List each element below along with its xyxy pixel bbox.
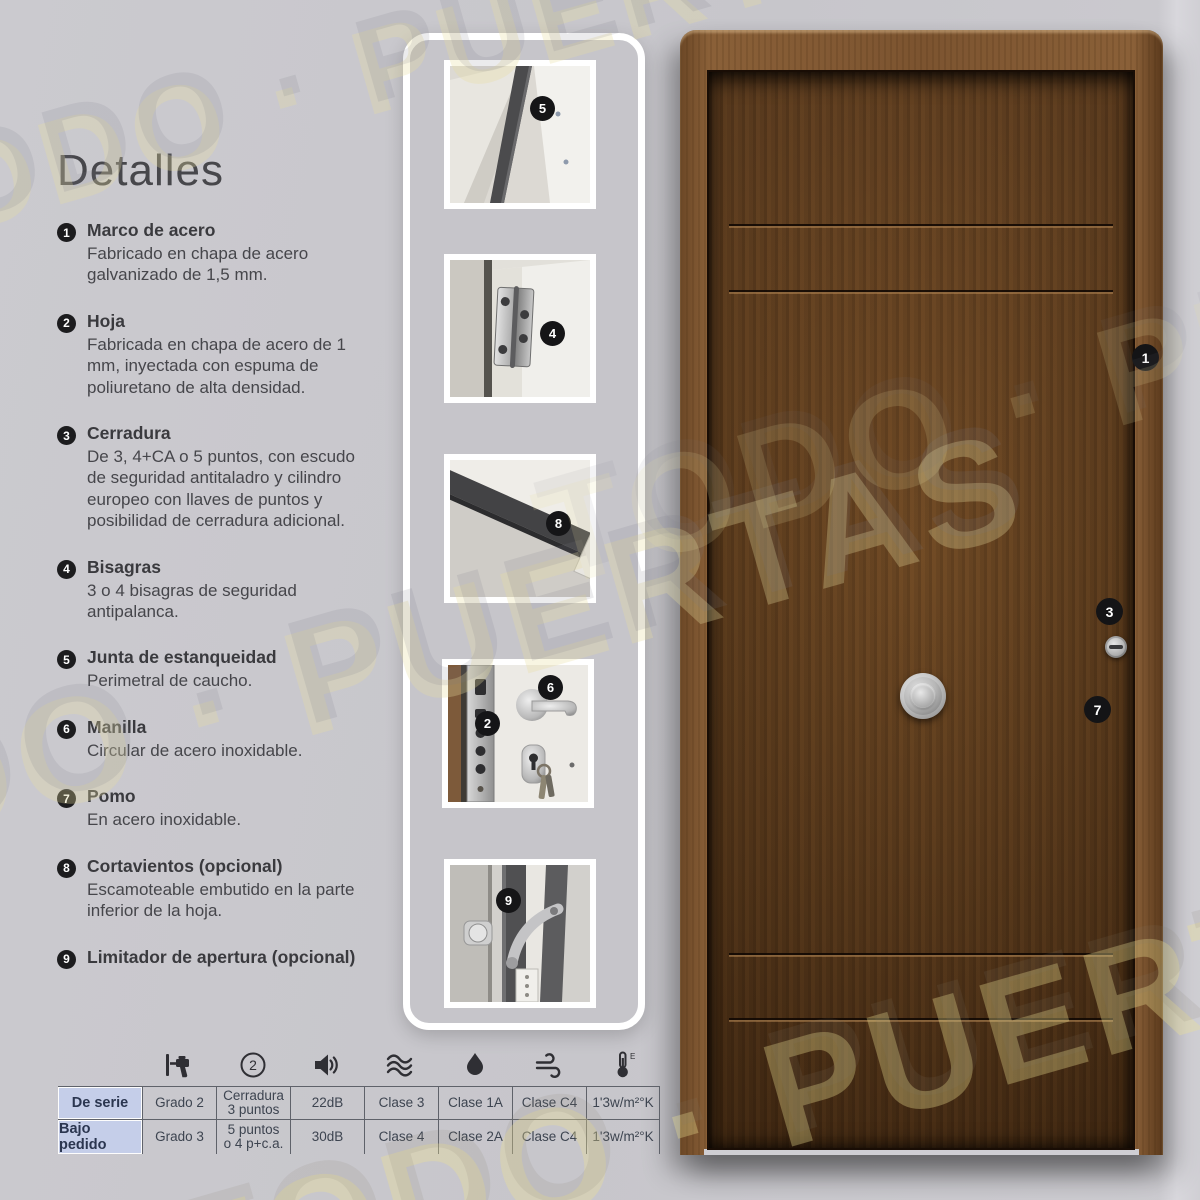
spec-table: 2 xyxy=(58,1044,660,1152)
photo-bisagra: 4 xyxy=(444,254,596,403)
item-desc: Escamoteable embutido en la parte inferi… xyxy=(87,879,372,922)
spec-row-bajo-pedido: Bajo pedido Grado 3 5 puntos o 4 p+c.a. … xyxy=(58,1119,660,1152)
photo-limitador: 9 xyxy=(444,859,596,1008)
list-item: 3 Cerradura De 3, 4+CA o 5 puntos, con e… xyxy=(57,423,372,532)
item-title: Cortavientos (opcional) xyxy=(87,856,372,877)
spec-cell: Clase 4 xyxy=(364,1120,438,1154)
number-badge: 5 xyxy=(57,650,76,669)
bisagra-photo-art xyxy=(450,260,590,397)
air-permeability-icon xyxy=(364,1044,438,1086)
svg-text:2: 2 xyxy=(249,1057,257,1073)
item-desc: Perimetral de caucho. xyxy=(87,670,372,691)
list-item: 2 Hoja Fabricada en chapa de acero de 1 … xyxy=(57,311,372,398)
limitador-photo-art xyxy=(450,865,590,1002)
item-title: Marco de acero xyxy=(87,220,372,241)
list-item: 5 Junta de estanqueidad Perimetral de ca… xyxy=(57,647,372,691)
number-badge: 6 xyxy=(57,720,76,739)
item-desc: Circular de acero inoxidable. xyxy=(87,740,372,761)
product-sheet: Detalles 1 Marco de acero Fabricado en c… xyxy=(0,0,1200,1200)
spec-cell: 30dB xyxy=(290,1120,364,1154)
spec-cell: Clase 3 xyxy=(364,1087,438,1119)
callout-4: 4 xyxy=(540,321,565,346)
row-label: De serie xyxy=(58,1087,142,1119)
detail-photos-panel: 5 xyxy=(403,33,645,1030)
lock-cylinder xyxy=(1105,636,1127,658)
spec-cell: 1'3w/m²°K xyxy=(586,1120,660,1154)
spec-cell: Clase C4 xyxy=(512,1120,586,1154)
number-badge: 8 xyxy=(57,859,76,878)
spec-cell: Clase 1A xyxy=(438,1087,512,1119)
watertightness-icon xyxy=(438,1044,512,1086)
svg-text:E: E xyxy=(630,1052,635,1061)
door-leaf xyxy=(707,70,1135,1150)
item-title: Cerradura xyxy=(87,423,372,444)
door-callout-1: 1 xyxy=(1132,344,1159,371)
item-title: Manilla xyxy=(87,717,372,738)
spec-cell: Grado 2 xyxy=(142,1087,216,1119)
list-item: 1 Marco de acero Fabricado en chapa de a… xyxy=(57,220,372,286)
callout-8: 8 xyxy=(546,511,571,536)
number-badge: 2 xyxy=(57,314,76,333)
acoustic-icon xyxy=(290,1044,364,1086)
door-groove xyxy=(729,290,1113,294)
spec-cell: 22dB xyxy=(290,1087,364,1119)
item-desc: Fabricada en chapa de acero de 1 mm, iny… xyxy=(87,334,372,398)
door-groove xyxy=(729,1018,1113,1022)
list-item: 4 Bisagras 3 o 4 bisagras de seguridad a… xyxy=(57,557,372,623)
thermal-icon: E xyxy=(586,1044,660,1086)
spec-cell: Grado 3 xyxy=(142,1120,216,1154)
item-title: Limitador de apertura (opcional) xyxy=(87,947,372,968)
door-groove xyxy=(729,953,1113,957)
number-badge: 1 xyxy=(57,223,76,242)
spec-icons-row: 2 xyxy=(58,1044,660,1086)
item-desc: En acero inoxidable. xyxy=(87,809,372,830)
list-item: 9 Limitador de apertura (opcional) xyxy=(57,947,372,969)
item-title: Pomo xyxy=(87,786,372,807)
spec-cell: 5 puntos o 4 p+c.a. xyxy=(216,1120,290,1154)
callout-2: 2 xyxy=(475,711,500,736)
photo-cortavientos: 8 xyxy=(444,454,596,603)
lock-points-icon: 2 xyxy=(216,1044,290,1086)
list-item: 6 Manilla Circular de acero inoxidable. xyxy=(57,717,372,761)
list-item: 7 Pomo En acero inoxidable. xyxy=(57,786,372,830)
door-photo: 1 3 7 xyxy=(680,30,1163,1155)
number-badge: 9 xyxy=(57,950,76,969)
details-section: Detalles 1 Marco de acero Fabricado en c… xyxy=(57,146,397,994)
item-desc: 3 o 4 bisagras de seguridad antipalanca. xyxy=(87,580,372,623)
door-callout-7: 7 xyxy=(1084,696,1111,723)
wind-resistance-icon xyxy=(512,1044,586,1086)
item-desc: Fabricado en chapa de acero galvanizado … xyxy=(87,243,372,286)
item-title: Junta de estanqueidad xyxy=(87,647,372,668)
spec-cell: 1'3w/m²°K xyxy=(586,1087,660,1119)
junta-photo-art xyxy=(450,66,590,203)
number-badge: 7 xyxy=(57,789,76,808)
callout-9: 9 xyxy=(496,888,521,913)
door-groove xyxy=(729,224,1113,228)
drill-icon xyxy=(142,1044,216,1086)
item-desc: De 3, 4+CA o 5 puntos, con escudo de seg… xyxy=(87,446,372,532)
callout-6: 6 xyxy=(538,675,563,700)
number-badge: 3 xyxy=(57,426,76,445)
photo-cerradura-manilla: 6 2 xyxy=(442,659,594,808)
item-title: Hoja xyxy=(87,311,372,332)
photo-junta-estanqueidad: 5 xyxy=(444,60,596,209)
spec-row-de-serie: De serie Grado 2 Cerradura 3 puntos 22dB… xyxy=(58,1086,660,1119)
item-title: Bisagras xyxy=(87,557,372,578)
list-item: 8 Cortavientos (opcional) Escamoteable e… xyxy=(57,856,372,922)
spec-cell: Cerradura 3 puntos xyxy=(216,1087,290,1119)
page-title: Detalles xyxy=(57,146,397,196)
wall-highlight xyxy=(1158,0,1200,1200)
door-knob xyxy=(900,673,946,719)
spec-cell: Clase 2A xyxy=(438,1120,512,1154)
callout-5: 5 xyxy=(530,96,555,121)
row-label: Bajo pedido xyxy=(58,1120,142,1154)
door-callout-3: 3 xyxy=(1096,598,1123,625)
spec-cell: Clase C4 xyxy=(512,1087,586,1119)
number-badge: 4 xyxy=(57,560,76,579)
cerradura-photo-art xyxy=(448,665,588,802)
